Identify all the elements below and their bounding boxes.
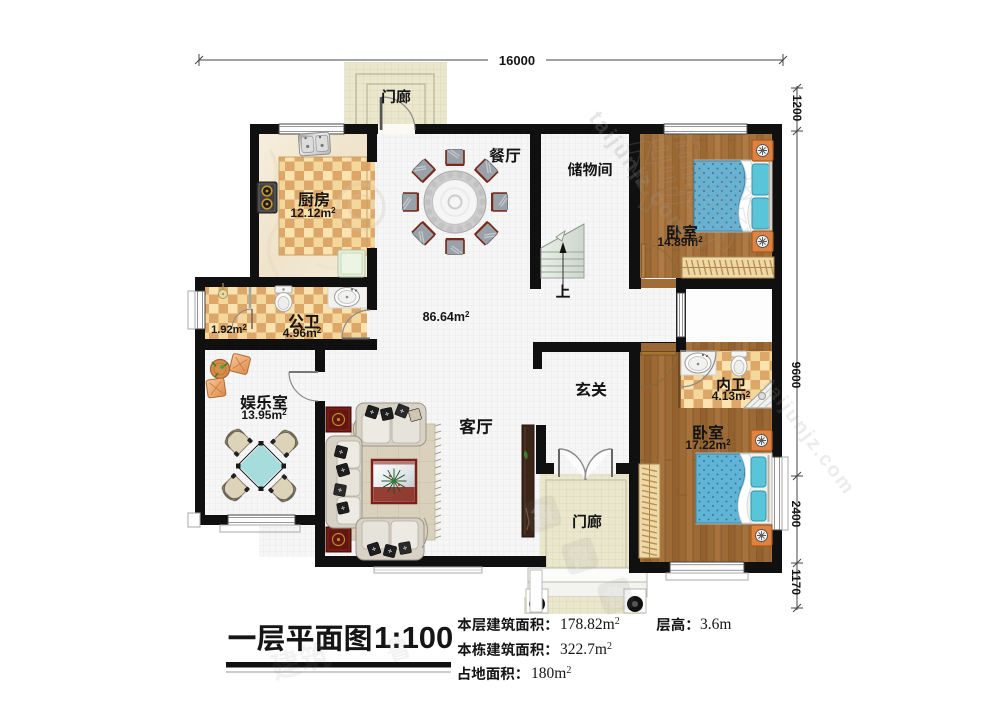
svg-text:9600: 9600 (789, 362, 803, 389)
svg-text:1200: 1200 (790, 95, 804, 122)
svg-text:2400: 2400 (789, 501, 803, 528)
svg-text:16000: 16000 (499, 53, 535, 68)
svg-text:17.22m2: 17.22m2 (685, 438, 731, 452)
svg-text:12.12m2: 12.12m2 (290, 206, 336, 220)
svg-text:1170: 1170 (789, 569, 803, 595)
svg-text:1:100: 1:100 (374, 620, 453, 655)
svg-text:86.64m2: 86.64m2 (423, 310, 470, 324)
svg-text:1.92m2: 1.92m2 (211, 323, 247, 336)
svg-text:4.13m2: 4.13m2 (712, 389, 751, 403)
svg-text:178.82m2: 178.82m2 (560, 616, 620, 633)
svg-text:13.95m2: 13.95m2 (241, 408, 287, 422)
svg-text:322.7m2: 322.7m2 (560, 641, 612, 658)
svg-text:3.6m: 3.6m (700, 616, 731, 633)
svg-text:4.96m2: 4.96m2 (283, 326, 322, 340)
svg-text:180m2: 180m2 (531, 665, 571, 682)
